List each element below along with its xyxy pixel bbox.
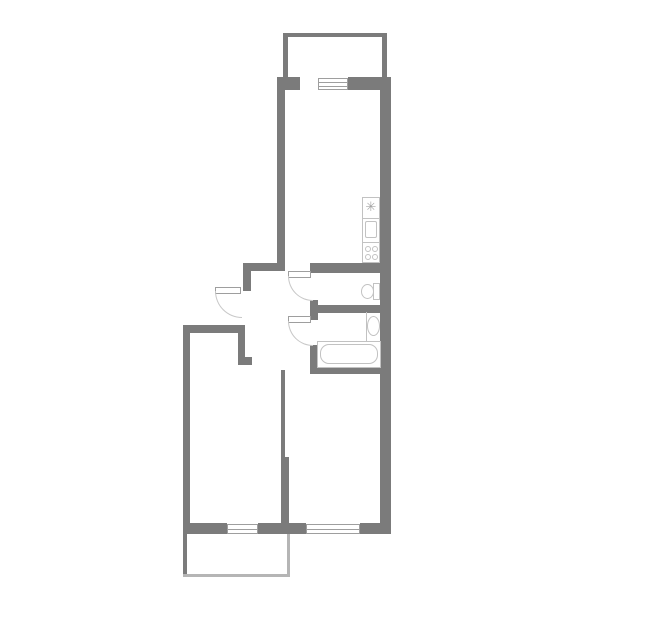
fridge-icon: ✳ (362, 200, 380, 215)
wc-top-wall (310, 263, 391, 273)
wc-door-arc (288, 276, 313, 301)
lower-balcony-bottom-wall (183, 574, 290, 577)
stove-burner-4 (372, 254, 378, 260)
kitchen-window-pane-line (319, 82, 347, 83)
bedroom-doorway-foot (238, 357, 252, 365)
bathroom-sink (367, 316, 380, 336)
kitchen-sink (365, 221, 377, 238)
counter-divider-bottom (362, 242, 380, 243)
lower-balcony-left-wall (183, 534, 187, 576)
entry-side-wall (243, 263, 251, 291)
bottom-wall-right (360, 523, 391, 534)
bottom-wall-center (258, 523, 306, 534)
stove-burner-3 (365, 254, 371, 260)
floor-plan: ✳ (0, 0, 645, 635)
living-room-left-wall-upper (281, 370, 285, 457)
stove-burner-2 (372, 246, 378, 252)
bottom-wall-left (183, 523, 227, 534)
upper-balcony-left-wall (283, 37, 288, 77)
counter-divider-top (362, 218, 380, 219)
bedroom-window-pane-line (228, 529, 257, 530)
stove-burner-1 (365, 246, 371, 252)
bedroom-window (227, 524, 258, 534)
bedroom-top-wall (183, 325, 245, 333)
bathtub-basin (320, 344, 378, 364)
kitchen-window-pane-line (319, 86, 347, 87)
toilet-tank (373, 283, 380, 300)
upper-balcony-top-wall (283, 33, 387, 37)
entry-door-arc (215, 291, 242, 318)
lower-balcony-right-wall (287, 534, 290, 577)
kitchen-left-wall (277, 77, 285, 271)
kitchen-window (318, 78, 348, 90)
upper-balcony-right-wall (382, 37, 387, 77)
bedroom-left-wall (183, 325, 190, 534)
toilet-bowl (361, 284, 374, 299)
wc-bath-partition (310, 305, 391, 313)
living-room-window (306, 524, 360, 534)
bathroom-door-arc (288, 321, 313, 346)
living-room-window-pane-line (307, 529, 359, 530)
